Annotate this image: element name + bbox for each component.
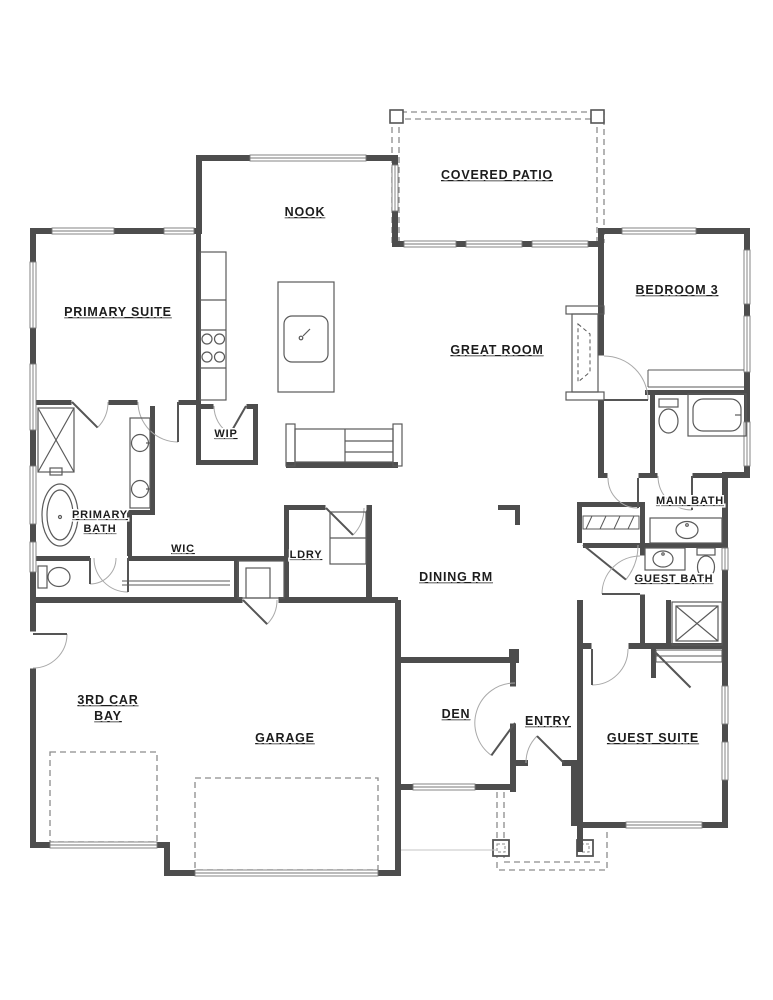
- room-label-entry: ENTRY: [525, 714, 571, 728]
- sink-icon: [132, 435, 151, 452]
- room-label-primary-bath-line1: PRIMARY: [72, 509, 128, 521]
- room-label-dining-rm: DINING RM: [419, 570, 493, 584]
- hall-closet-shelf: [583, 516, 639, 529]
- sink-icon: [132, 481, 151, 498]
- fireplace-icon: [566, 306, 604, 400]
- main-bath-vanity: [650, 518, 722, 543]
- room-label-primary-bath-line2: BATH: [84, 523, 117, 535]
- guest-closet-shelf: [656, 650, 722, 662]
- room-label-wip: WIP: [214, 428, 237, 440]
- room-label-garage: GARAGE: [255, 731, 315, 745]
- room-label-guest-suite: GUEST SUITE: [607, 731, 699, 745]
- room-label-3rd-car-bay-line1: 3RD CAR: [77, 693, 138, 707]
- room-label-bedroom-3: BEDROOM 3: [636, 283, 719, 297]
- bedroom3-closet-rod: [648, 370, 744, 387]
- kitchen-counter: [200, 252, 226, 400]
- room-label-primary-suite: PRIMARY SUITE: [64, 305, 172, 319]
- guest-bath-vanity: [645, 548, 685, 570]
- room-label-3rd-car-bay-line2: BAY: [94, 709, 122, 723]
- built-in-cabinet: [286, 424, 402, 466]
- guest-shower-icon: [672, 602, 722, 645]
- island-sink-icon: [284, 316, 328, 362]
- kitchen-island: [278, 282, 334, 392]
- room-label-nook: NOOK: [285, 205, 326, 219]
- primary-vanity: [130, 418, 150, 508]
- walls-layer: [30, 155, 750, 876]
- sink-icon: [676, 522, 698, 539]
- cooktop-icon: [202, 334, 225, 362]
- mud-cabinet: [238, 561, 284, 598]
- sink-icon: [653, 551, 673, 567]
- room-label-covered-patio: COVERED PATIO: [441, 168, 553, 182]
- room-label-den: DEN: [442, 707, 471, 721]
- room-label-great-room: GREAT ROOM: [450, 343, 543, 357]
- room-label-guest-bath: GUEST BATH: [635, 573, 714, 585]
- room-label-main-bath: MAIN BATH: [656, 495, 724, 507]
- primary-shower-icon: [38, 408, 74, 475]
- dashed-outlines-layer: [50, 110, 607, 870]
- primary-toilet-icon: [38, 566, 70, 588]
- room-label-ldry: LDRY: [290, 549, 323, 561]
- laundry-counter: [330, 512, 366, 564]
- main-bath-toilet-icon: [659, 399, 678, 433]
- wic-shelf: [122, 581, 230, 585]
- room-label-wic: WIC: [171, 543, 195, 555]
- main-bath-tub-icon: [688, 394, 746, 436]
- floor-plan-drawing: COVERED PATIO NOOK PRIMARY SUITE BEDROOM…: [0, 0, 773, 1000]
- room-labels-layer: COVERED PATIO NOOK PRIMARY SUITE BEDROOM…: [64, 168, 724, 745]
- floor-plan-canvas: COVERED PATIO NOOK PRIMARY SUITE BEDROOM…: [0, 0, 773, 1000]
